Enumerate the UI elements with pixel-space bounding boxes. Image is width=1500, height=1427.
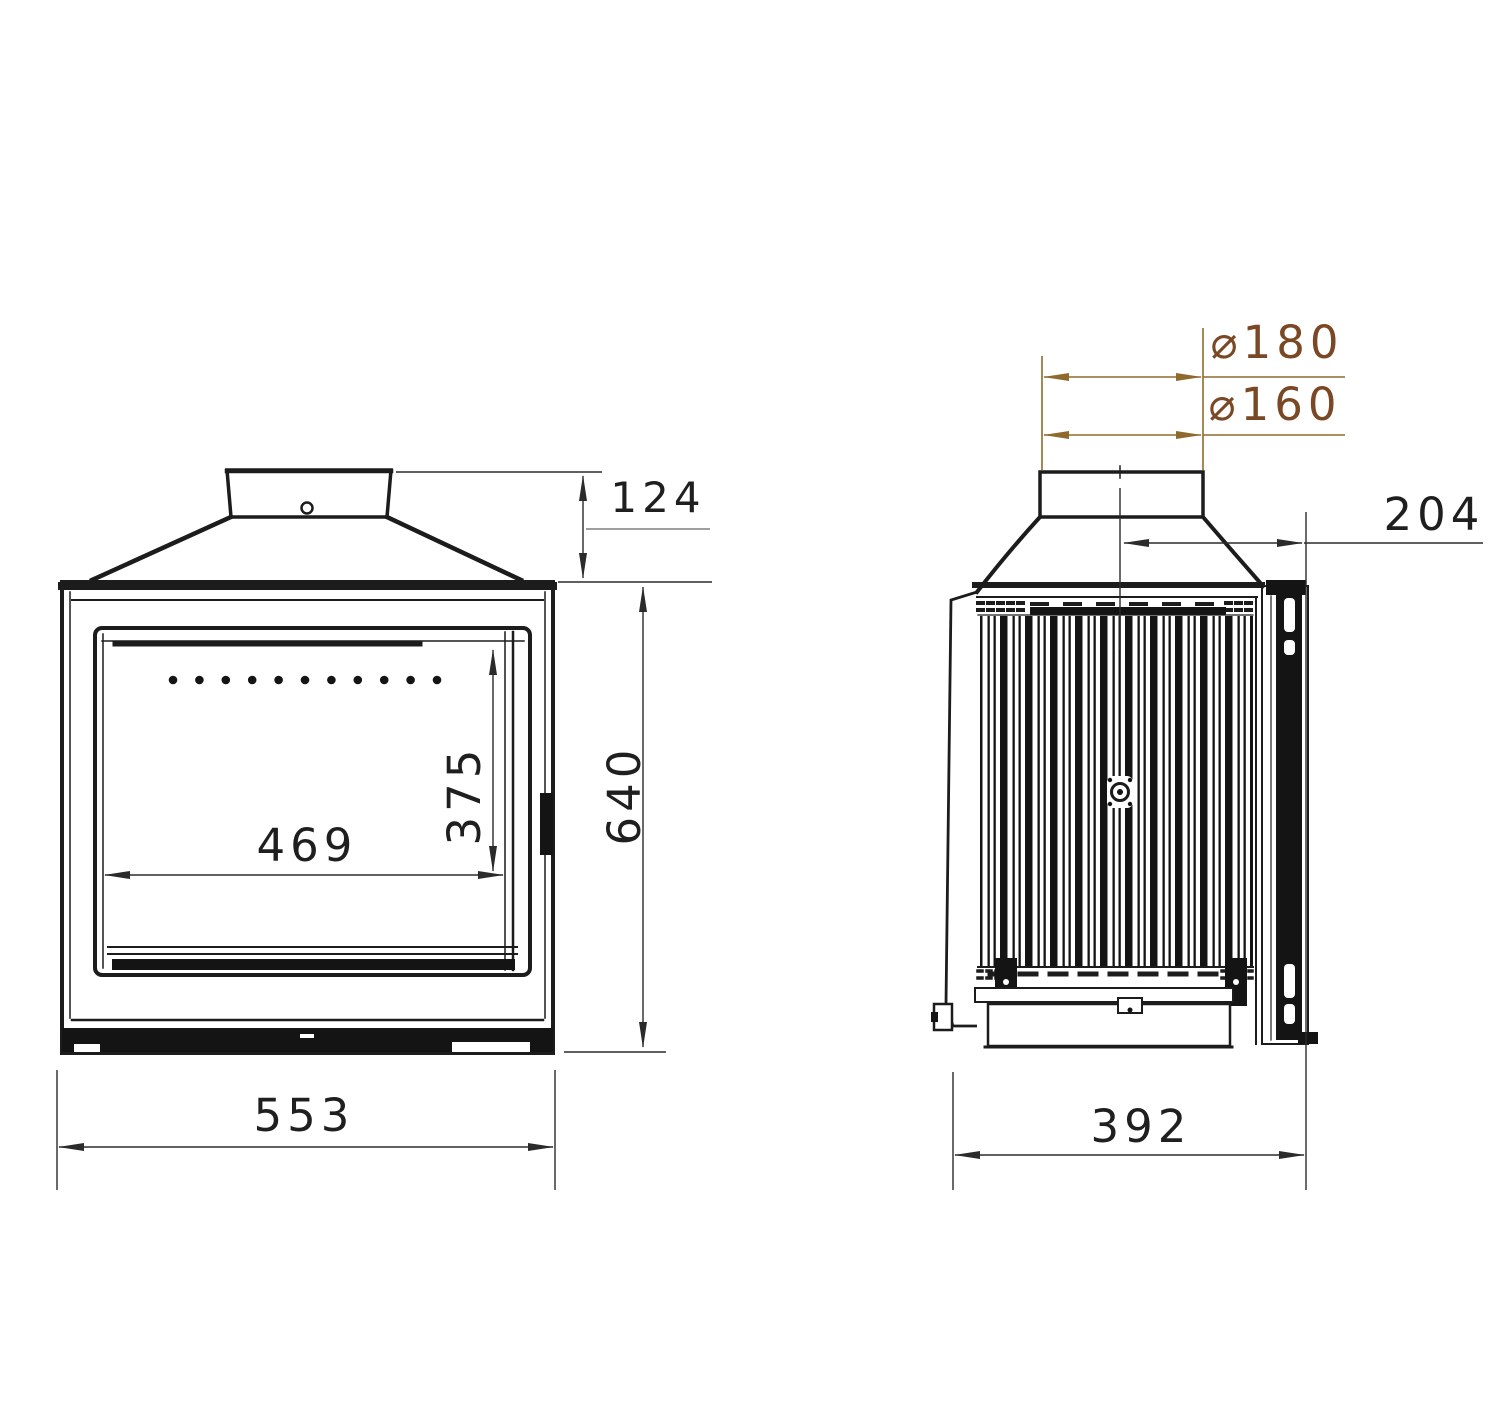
dimension-overall-width: 553 [57,1070,555,1190]
dim-label-glass-width: 469 [257,819,358,872]
front-hood-left-slope [92,517,231,580]
side-vent-slots [978,603,1256,615]
side-rear-panel [946,592,977,1026]
side-door-foot [1298,1032,1318,1044]
dimension-collar-height: 124 [396,472,712,582]
drawing-page: 124 640 469 375 553 ⌀18 [0,0,1500,1427]
dimension-flue-inner-diameter: ⌀160 [1044,378,1345,435]
side-hood-left-slope [977,517,1040,592]
dimension-overall-depth: 392 [953,1072,1304,1190]
technical-drawing: 124 640 469 375 553 ⌀18 [0,0,1500,1427]
front-base-notch-center [300,1034,314,1038]
dim-label-flue-outer-diameter: ⌀180 [1211,316,1344,369]
side-door-slot-top1 [1284,598,1295,632]
side-door-top-cap [1266,580,1306,595]
front-door-handle [540,793,553,855]
front-hood-right-slope [387,517,521,580]
side-view [931,466,1318,1047]
side-rear-bracket-notch [931,1012,938,1022]
dim-label-glass-height: 375 [438,745,491,846]
dim-label-collar-height: 124 [610,473,705,522]
side-door-slot-top2 [1284,640,1295,655]
dimension-overall-height: 640 [564,587,666,1052]
side-bottom-assembly [975,958,1252,1047]
dim-label-flue-inner-diameter: ⌀160 [1209,378,1342,431]
dim-label-overall-depth: 392 [1091,1100,1192,1153]
side-hood-right-slope [1203,517,1263,586]
side-door-slot-bottom1 [1284,964,1295,998]
dim-label-flue-center-to-front: 204 [1384,488,1485,541]
side-door-slot-bottom2 [1284,1004,1295,1024]
front-log-guard-bar [112,959,515,970]
dim-label-overall-height: 640 [598,745,651,846]
front-flue-collar [227,470,391,517]
front-base-notch-right [452,1042,530,1052]
front-base-notch-left [74,1044,100,1052]
side-flue-collar [1040,472,1203,517]
dim-label-overall-width: 553 [254,1089,355,1142]
side-center-boss [1107,776,1133,808]
